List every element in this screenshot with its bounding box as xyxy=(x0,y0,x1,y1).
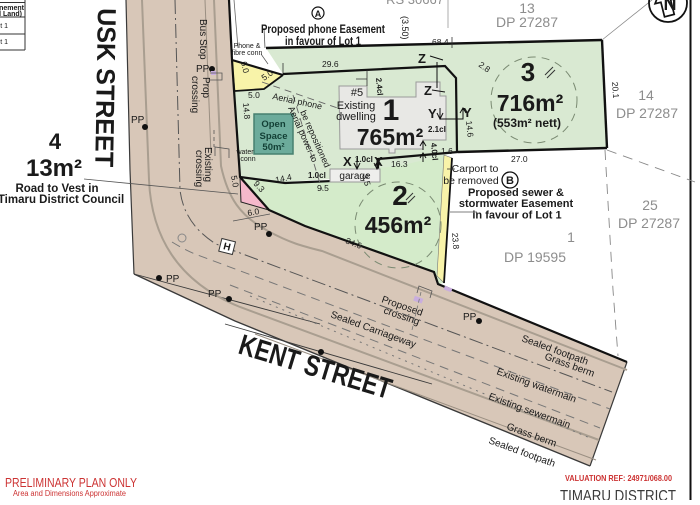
svg-text:1: 1 xyxy=(383,94,400,127)
svg-text:Bus Stop: Bus Stop xyxy=(197,19,208,60)
svg-text:DP 27287: DP 27287 xyxy=(496,14,558,30)
svg-text:14.8: 14.8 xyxy=(241,102,252,120)
svg-text:crossing: crossing xyxy=(193,150,204,187)
svg-text:Y: Y xyxy=(463,105,472,120)
svg-text:13m²: 13m² xyxy=(26,155,82,182)
svg-text:Y: Y xyxy=(428,106,437,121)
svg-text:conn: conn xyxy=(240,156,255,163)
svg-text:in favour of Lot 1: in favour of Lot 1 xyxy=(472,210,561,222)
svg-text:DP 19595: DP 19595 xyxy=(504,249,566,265)
svg-text:Phone &: Phone & xyxy=(234,43,261,50)
svg-text:RS 30667: RS 30667 xyxy=(386,0,444,7)
svg-text:25: 25 xyxy=(642,197,658,213)
svg-text:VALUATION REF: 24971/068.00: VALUATION REF: 24971/068.00 xyxy=(565,474,672,483)
svg-text:PP: PP xyxy=(208,289,222,300)
svg-text:1.0cl: 1.0cl xyxy=(355,155,373,164)
svg-text:#5: #5 xyxy=(351,87,363,99)
svg-text:X: X xyxy=(343,154,352,169)
svg-text:1: 1 xyxy=(567,229,575,245)
svg-text:water: water xyxy=(235,149,254,156)
svg-text:765m²: 765m² xyxy=(357,124,424,150)
svg-text:20.1: 20.1 xyxy=(610,81,621,98)
svg-text:1.6: 1.6 xyxy=(441,146,453,156)
svg-text:PP: PP xyxy=(254,222,268,233)
svg-text:23.8: 23.8 xyxy=(450,232,461,250)
svg-text:be removed: be removed xyxy=(443,175,499,187)
svg-text:Area and Dimensions Approximat: Area and Dimensions Approximate xyxy=(13,489,126,498)
svg-text:50m²: 50m² xyxy=(262,142,284,153)
svg-text:Prop: Prop xyxy=(200,77,211,99)
svg-text:PP: PP xyxy=(463,312,477,323)
svg-text:1.0cl: 1.0cl xyxy=(308,171,326,180)
svg-text:2: 2 xyxy=(392,180,408,211)
svg-text:14.6: 14.6 xyxy=(464,120,476,138)
svg-text:ot 1: ot 1 xyxy=(0,39,8,46)
svg-text:DP 27287: DP 27287 xyxy=(618,215,680,231)
svg-text:stormwater Easement: stormwater Easement xyxy=(459,198,574,210)
svg-text:d Land): d Land) xyxy=(0,11,22,18)
svg-text:4: 4 xyxy=(49,129,62,154)
svg-text:Open: Open xyxy=(261,119,285,130)
svg-text:PRELIMINARY PLAN ONLY: PRELIMINARY PLAN ONLY xyxy=(5,476,138,490)
svg-text:B: B xyxy=(506,175,514,187)
svg-text:3: 3 xyxy=(521,57,535,87)
svg-text:5.0: 5.0 xyxy=(229,175,241,189)
svg-text:16.3: 16.3 xyxy=(391,159,408,169)
svg-text:Space: Space xyxy=(260,131,288,142)
svg-text:14: 14 xyxy=(638,87,654,103)
svg-text:TIMARU DISTRICT: TIMARU DISTRICT xyxy=(560,488,676,500)
svg-text:dwelling: dwelling xyxy=(336,111,376,123)
svg-text:4.0cl: 4.0cl xyxy=(429,142,440,161)
svg-text:(3.50): (3.50) xyxy=(400,16,410,40)
svg-text:crossing: crossing xyxy=(189,76,200,113)
svg-text:Z: Z xyxy=(424,83,432,98)
svg-text:A: A xyxy=(315,9,322,19)
svg-text:29.6: 29.6 xyxy=(322,59,339,69)
svg-text:716m²: 716m² xyxy=(497,90,564,116)
svg-text:9.5: 9.5 xyxy=(317,183,329,193)
svg-text:in favour of Lot 1: in favour of Lot 1 xyxy=(285,34,361,48)
svg-text:fibre conn: fibre conn xyxy=(232,50,263,57)
svg-text:456m²: 456m² xyxy=(365,212,432,238)
svg-text:PP: PP xyxy=(196,64,210,75)
svg-text:68.4: 68.4 xyxy=(432,37,449,47)
svg-text:27.0: 27.0 xyxy=(511,154,528,164)
svg-text:5.0: 5.0 xyxy=(248,90,260,100)
svg-text:PP: PP xyxy=(131,115,145,126)
svg-text:PP: PP xyxy=(166,274,180,285)
svg-text:DP 27287: DP 27287 xyxy=(616,105,678,121)
svg-text:2.1cl: 2.1cl xyxy=(428,125,446,134)
svg-text:ot 1: ot 1 xyxy=(0,23,8,30)
svg-text:2.4cl: 2.4cl xyxy=(374,77,385,96)
svg-text:(553m² nett): (553m² nett) xyxy=(493,116,561,130)
svg-text:Z: Z xyxy=(418,51,426,66)
svg-text:USK STREET: USK STREET xyxy=(89,8,122,168)
svg-text:N: N xyxy=(663,0,676,14)
svg-text:Carport to: Carport to xyxy=(452,163,499,175)
svg-text:Timaru District Council: Timaru District Council xyxy=(0,194,124,206)
